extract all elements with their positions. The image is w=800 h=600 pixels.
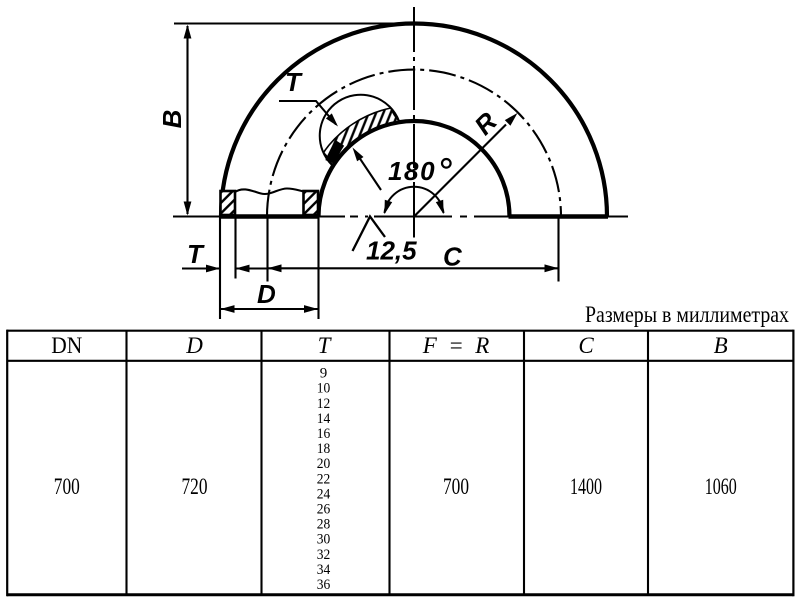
svg-text:B: B: [157, 110, 187, 129]
svg-text:18: 18: [317, 441, 331, 457]
svg-text:Размеры в миллиметрах: Размеры в миллиметрах: [585, 302, 789, 327]
svg-text:700: 700: [443, 474, 469, 499]
svg-text:20: 20: [317, 456, 331, 472]
svg-text:1060: 1060: [705, 474, 737, 499]
svg-text:24: 24: [317, 486, 331, 502]
svg-text:28: 28: [317, 517, 331, 533]
svg-text:12,5: 12,5: [366, 236, 417, 266]
svg-text:B: B: [714, 333, 728, 358]
svg-text:26: 26: [317, 502, 331, 518]
svg-text:180: 180: [388, 156, 436, 186]
svg-text:36: 36: [317, 577, 331, 593]
svg-text:34: 34: [317, 562, 331, 578]
svg-text:22: 22: [317, 471, 331, 487]
svg-text:32: 32: [317, 547, 331, 563]
svg-text:C: C: [578, 333, 594, 358]
svg-text:DN: DN: [51, 333, 82, 358]
svg-text:10: 10: [317, 381, 331, 397]
svg-text:F = R: F = R: [422, 333, 490, 358]
svg-text:C: C: [443, 242, 463, 272]
svg-text:700: 700: [54, 474, 80, 499]
svg-text:16: 16: [317, 426, 331, 442]
svg-text:30: 30: [317, 532, 331, 548]
svg-text:T: T: [318, 333, 333, 358]
svg-text:T: T: [187, 239, 205, 269]
svg-text:720: 720: [182, 474, 208, 499]
svg-text:T: T: [285, 67, 303, 97]
svg-text:12: 12: [317, 396, 331, 412]
svg-text:1400: 1400: [570, 474, 602, 499]
svg-text:9: 9: [320, 366, 328, 382]
svg-text:14: 14: [317, 411, 331, 427]
svg-text:D: D: [257, 279, 276, 309]
svg-text:D: D: [185, 333, 203, 358]
